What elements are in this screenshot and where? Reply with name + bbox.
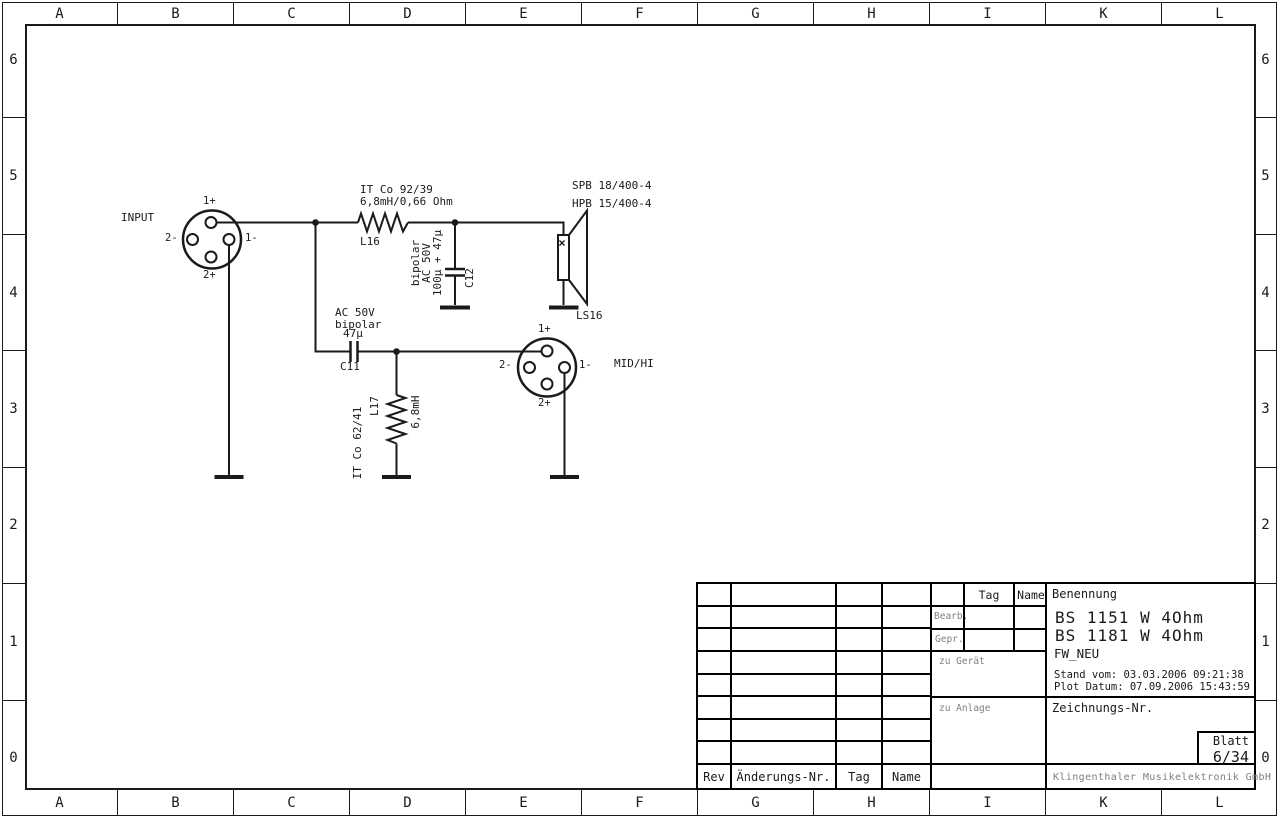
- speaker-model2-label: HPB 15/400-4: [572, 198, 651, 210]
- input-pin-label-1minus: 1-: [245, 233, 258, 244]
- revision-row-cell: [732, 720, 837, 743]
- gepr-label: Gepr.: [932, 630, 965, 653]
- zu-geraet-cell: zu Gerät: [932, 652, 1047, 698]
- bearb-tag-cell: [965, 607, 1015, 630]
- l16-ref-label: L16: [360, 236, 380, 248]
- input-pin-label-2plus: 2+: [203, 270, 216, 281]
- junction-dot: [393, 348, 400, 355]
- benennung-label: Benennung: [1052, 587, 1117, 601]
- input-pin-1minus: [224, 234, 235, 245]
- midhi-pin-label-2minus: 2-: [499, 360, 512, 371]
- revision-row-cell: [698, 675, 732, 698]
- gepr-name-cell: [1015, 630, 1047, 653]
- midhi-pin-label-1minus: 1-: [579, 360, 592, 371]
- approval-name-header: Name: [1015, 584, 1047, 607]
- l16-value-label: 6,8mH/0,66 Ohm: [360, 196, 453, 208]
- c12-ref-label: C12: [464, 268, 476, 288]
- c11-ref-label: C11: [340, 361, 360, 373]
- blatt-box: Blatt 6/34: [1197, 731, 1256, 765]
- stand-vom-text: Stand vom: 03.03.2006 09:21:38: [1054, 669, 1244, 681]
- revision-row-cell: [837, 584, 883, 607]
- revision-table-grid: [698, 584, 930, 765]
- revision-row-cell: [837, 742, 883, 765]
- speaker-ref-label: LS16: [576, 310, 603, 322]
- inductor-l17-symbol: [388, 395, 406, 444]
- approval-bottom-cell: [932, 765, 1047, 790]
- revision-row-cell: [837, 720, 883, 743]
- revision-row-cell: [837, 652, 883, 675]
- revision-row-cell: [732, 584, 837, 607]
- midhi-pin-1minus: [559, 362, 570, 373]
- junction-dot: [452, 219, 459, 226]
- approval-section: Tag Name Bearb. Gepr. zu Gerät zu Anlage: [930, 584, 1045, 790]
- approval-tag-header: Tag: [965, 584, 1015, 607]
- revision-row-cell: [837, 629, 883, 652]
- midhi-pin-2minus: [524, 362, 535, 373]
- midhi-pin-label-2plus: 2+: [538, 398, 551, 409]
- revision-row-cell: [883, 697, 930, 720]
- bearb-label: Bearb.: [932, 607, 965, 630]
- input-pin-1plus: [206, 217, 217, 228]
- revision-row-cell: [837, 675, 883, 698]
- revision-row-cell: [698, 584, 732, 607]
- l17-ref-label: L17: [369, 396, 381, 416]
- zeichnungs-nr-cell: Zeichnungs-Nr. Blatt 6/34: [1047, 698, 1256, 766]
- midhi-pin-1plus: [542, 346, 553, 357]
- l17-type-label: IT Co 62/41: [352, 407, 364, 480]
- revision-row-cell: [883, 629, 930, 652]
- input-pin-label-2minus: 2-: [165, 233, 178, 244]
- revision-row-cell: [698, 742, 732, 765]
- revision-row-cell: [698, 607, 732, 630]
- midhi-pin-2plus: [542, 379, 553, 390]
- revision-row-cell: [883, 720, 930, 743]
- approval-corner-cell: [932, 584, 965, 607]
- revision-row-cell: [732, 697, 837, 720]
- gepr-tag-cell: [965, 630, 1015, 653]
- name-col-header: Name: [883, 765, 930, 788]
- revision-row-cell: [732, 629, 837, 652]
- rev-col-header: Rev: [698, 765, 732, 788]
- title-block: Rev Änderungs-Nr. Tag Name Tag Name Bear…: [696, 582, 1256, 790]
- zeichnungs-nr-label: Zeichnungs-Nr.: [1052, 701, 1153, 715]
- blatt-label: Blatt: [1199, 733, 1254, 748]
- input-pin-2plus: [206, 252, 217, 263]
- revision-row-cell: [883, 675, 930, 698]
- input-connector-label: INPUT: [121, 212, 154, 224]
- plot-datum-text: Plot Datum: 07.09.2006 15:43:59: [1054, 681, 1250, 693]
- revision-row-cell: [883, 652, 930, 675]
- revision-row-cell: [698, 629, 732, 652]
- tag-col-header: Tag: [837, 765, 883, 788]
- c12-spec3-label: 100µ + 47µ: [432, 230, 444, 296]
- title-section: Benennung BS 1151 W 4Ohm BS 1181 W 4Ohm …: [1045, 584, 1254, 790]
- input-pin-label-1plus: 1+: [203, 196, 216, 207]
- bearb-name-cell: [1015, 607, 1047, 630]
- speaker-model1-label: SPB 18/400-4: [572, 180, 651, 192]
- junction-dot: [312, 219, 319, 226]
- zu-anlage-cell: zu Anlage: [932, 698, 1047, 766]
- revision-row-cell: [883, 742, 930, 765]
- revision-row-cell: [732, 742, 837, 765]
- c11-spec3-label: 47µ: [343, 328, 363, 340]
- company-name: Klingenthaler Musikelektronik GmbH: [1047, 765, 1256, 790]
- revision-row-cell: [883, 607, 930, 630]
- revision-row-cell: [732, 652, 837, 675]
- revision-table-header: Rev Änderungs-Nr. Tag Name: [698, 765, 930, 788]
- inductor-l16-symbol: [358, 214, 408, 232]
- cap-c12-symbol: [445, 269, 465, 276]
- revision-row-cell: [837, 607, 883, 630]
- drawing-subtitle: FW_NEU: [1054, 646, 1099, 661]
- midhi-pin-label-1plus: 1+: [538, 324, 551, 335]
- input-pin-2minus: [187, 234, 198, 245]
- change-nr-col-header: Änderungs-Nr.: [732, 765, 837, 788]
- revision-row-cell: [883, 584, 930, 607]
- midhi-connector-label: MID/HI: [614, 358, 654, 370]
- revision-row-cell: [732, 607, 837, 630]
- revision-row-cell: [837, 697, 883, 720]
- drawing-title-line1: BS 1151 W 4Ohm: [1055, 608, 1204, 627]
- revision-row-cell: [698, 697, 732, 720]
- benennung-cell: Benennung BS 1151 W 4Ohm BS 1181 W 4Ohm …: [1047, 584, 1256, 698]
- schematic-sheet: ABCDEFGHIKL ABCDEFGHIKL 6543210 6543210: [0, 0, 1280, 819]
- blatt-value: 6/34: [1199, 748, 1254, 766]
- drawing-title-line2: BS 1181 W 4Ohm: [1055, 626, 1204, 645]
- revision-row-cell: [698, 720, 732, 743]
- revision-row-cell: [732, 675, 837, 698]
- revision-row-cell: [698, 652, 732, 675]
- cap-c11-symbol: [351, 341, 358, 362]
- l17-value-label: 6,8mH: [410, 395, 422, 428]
- speaker-cone: [569, 211, 587, 305]
